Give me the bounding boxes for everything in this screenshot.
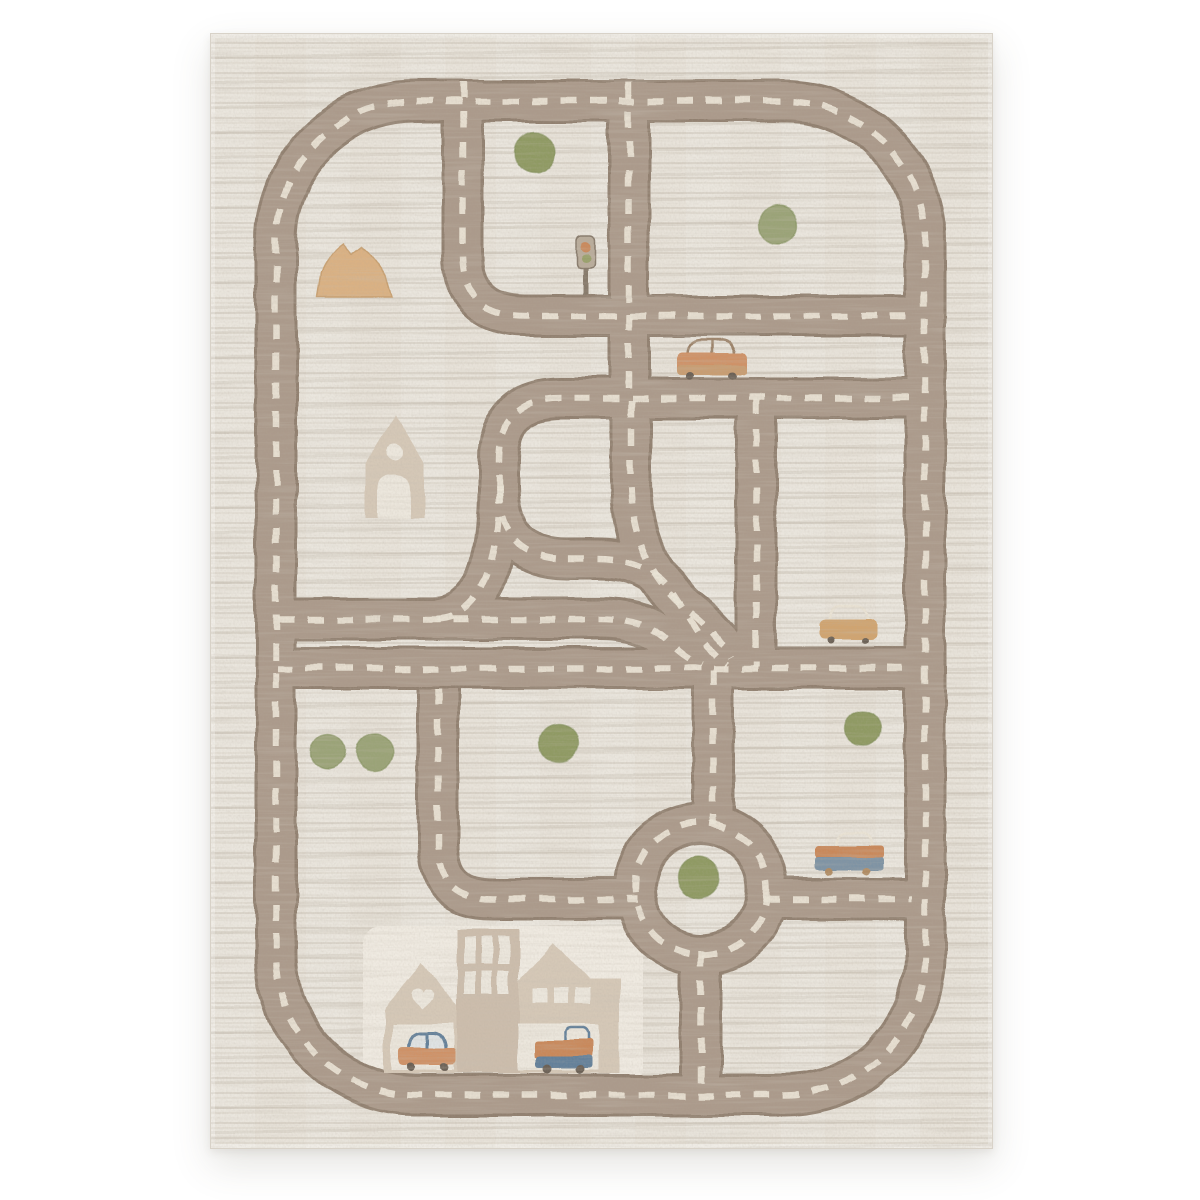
carpet-fiber-texture [211,34,992,1148]
play-rug [210,33,993,1149]
photo-backdrop [0,0,1200,1200]
rug-artwork [211,34,992,1148]
